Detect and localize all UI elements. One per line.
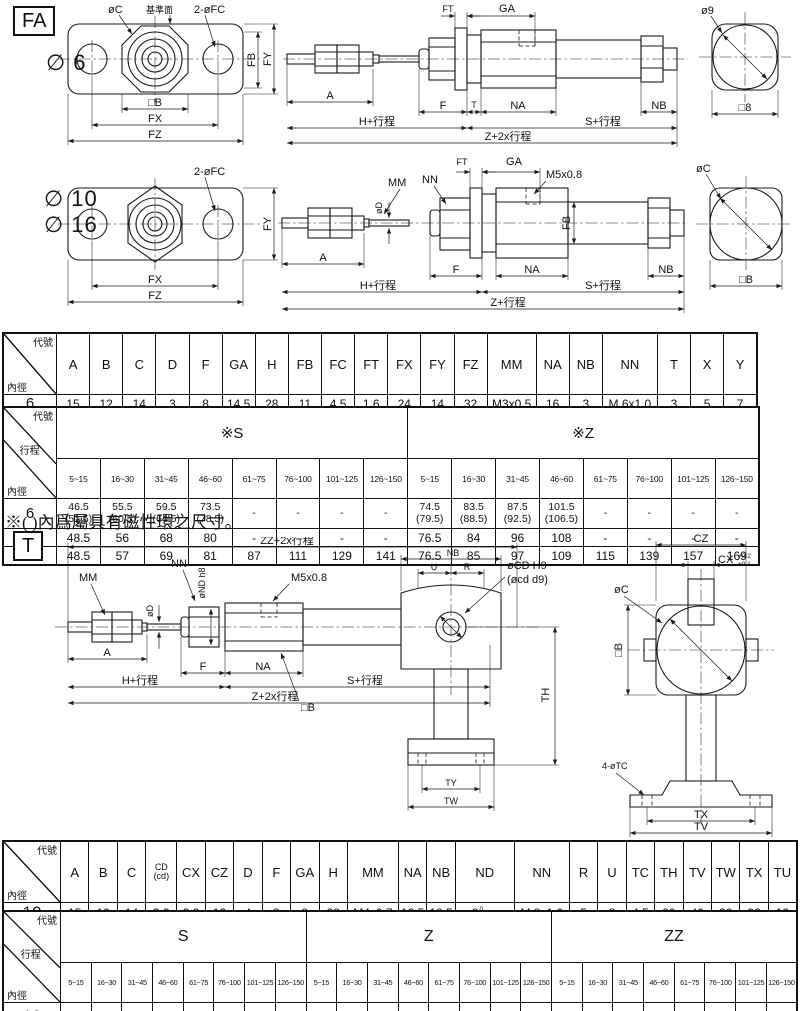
- dim-label-t: T: [471, 100, 477, 110]
- column-header-cell: ND: [455, 841, 514, 903]
- dim-label-od: øD: [145, 605, 155, 617]
- group-header-row: 代號 行程 內徑 ※S ※Z: [3, 407, 759, 459]
- dim-label-u: U: [431, 562, 438, 572]
- dim-label-nb: NB: [651, 100, 666, 112]
- dim-label-cz: CZ: [694, 533, 709, 545]
- column-header-cell: 101~125: [320, 459, 364, 499]
- dim-label-b: □B: [739, 274, 753, 286]
- column-header-cell: 101~125: [245, 963, 276, 1003]
- column-header-cell: 101~125: [671, 459, 715, 499]
- column-header-cell: D: [234, 841, 262, 903]
- column-header-cell: C: [117, 841, 145, 903]
- value-cell: 48.5: [61, 1003, 92, 1011]
- column-header-cell: 76~100: [627, 459, 671, 499]
- column-header-cell: 61~75: [674, 963, 705, 1003]
- value-cell: -: [275, 1003, 306, 1011]
- dim-label-tx: TX: [694, 809, 709, 821]
- column-header-cell: Y: [724, 333, 757, 395]
- corner-label-stroke: 行程: [21, 946, 41, 961]
- table-header-row: 代號 內徑 ABCCD (cd)CXCZDFGAHMMNANBNDNNRUTCT…: [3, 841, 797, 903]
- corner-label-stroke: 行程: [20, 442, 40, 457]
- magnet-note: ※( )內爲屬具有磁性環之尺寸。: [5, 508, 242, 533]
- dim-label-fy: FY: [262, 216, 274, 231]
- dim-label-r: R: [464, 562, 471, 572]
- value-cell: -: [183, 1003, 214, 1011]
- value-cell: 74.5 (79.5): [408, 499, 452, 529]
- column-header-cell: 126~150: [521, 963, 552, 1003]
- column-header-cell: 31~45: [122, 963, 153, 1003]
- column-header-cell: 76~100: [214, 963, 245, 1003]
- column-header-cell: TW: [712, 841, 740, 903]
- leaders: MM øD NN M5x0.8: [374, 169, 582, 244]
- dimensions: FT GA FB A F NA NB H+行程 S+行程 Z+行程: [282, 156, 684, 313]
- column-header-cell: CD (cd): [146, 841, 177, 903]
- fa-side-view-bore1016: MM øD NN M5x0.8 FT GA FB A F: [278, 152, 693, 327]
- value-cell: 101.5 (106.5): [539, 499, 583, 529]
- column-header-cell: 16~30: [337, 963, 368, 1003]
- dim-label-fy: FY: [262, 51, 274, 66]
- column-header-cell: NN: [602, 333, 657, 395]
- value-cell: -: [671, 499, 715, 529]
- fa-end-view-bore6: ø9 □8: [695, 2, 795, 132]
- column-header-cell: 5~15: [552, 963, 583, 1003]
- column-header-cell: FB: [288, 333, 321, 395]
- value-cell: -: [214, 1003, 245, 1011]
- dim-label-na: NA: [255, 661, 271, 673]
- dim-label-h-stroke: H+行程: [122, 674, 158, 687]
- column-header-cell: TU: [768, 841, 797, 903]
- value-cell: -: [766, 1003, 797, 1011]
- column-header-cell: 101~125: [736, 963, 767, 1003]
- value-cell: -: [364, 499, 408, 529]
- column-header-cell: 16~30: [91, 963, 122, 1003]
- dimensions: FT GA A F T NA NB H+行程 S+行程 Z+2x行程: [287, 3, 677, 147]
- value-cell: 115: [613, 1003, 644, 1011]
- corner-label-code: 代號: [33, 408, 53, 423]
- dim-label-oc: øC: [108, 4, 123, 16]
- value-cell: 68: [122, 1003, 153, 1011]
- value-cell: -: [627, 499, 671, 529]
- value-cell: -: [276, 499, 320, 529]
- dim-label-oc: øC: [696, 163, 711, 175]
- dimensions: CZ CX +0.2 +0.1 øC □B 4-øTC TX TV: [602, 533, 772, 837]
- t-side-view: MM øD NN øND h8 M5x0.8 □B øCD H9 (øcd d9…: [35, 537, 600, 832]
- column-header-cell: 126~150: [766, 963, 797, 1003]
- dim-label-tw: TW: [444, 796, 458, 806]
- dim-label-fb: FB: [561, 216, 573, 230]
- column-header-cell: 126~150: [715, 459, 759, 499]
- value-cell: 84.5: [306, 1003, 337, 1011]
- corner-label-code: 代號: [37, 842, 57, 857]
- dim-label-mm: MM: [79, 572, 97, 584]
- dim-label-nn: NN: [422, 174, 438, 186]
- column-header-cell: A: [57, 333, 90, 395]
- column-header-cell: R: [569, 841, 597, 903]
- column-header-cell: MM: [487, 333, 536, 395]
- corner-label-code: 代號: [33, 334, 53, 349]
- corner-label-code: 代號: [37, 912, 57, 927]
- dim-label-fb: FB: [246, 53, 258, 67]
- column-header-cell: B: [90, 333, 123, 395]
- group-header-s: ※S: [57, 407, 408, 459]
- t-stroke-table: 代號 行程 內徑 S Z ZZ 5~1516~3031~4546~6061~75…: [2, 910, 798, 1011]
- column-header-cell: FT: [355, 333, 388, 395]
- column-header-cell: U: [598, 841, 626, 903]
- column-header-cell: 5~15: [61, 963, 92, 1003]
- dim-label-z-stroke: Z+2x行程: [485, 130, 532, 143]
- stroke-header-row: 5~1516~3031~4546~6061~7576~100101~125126…: [3, 459, 759, 499]
- dim-label-ga: GA: [506, 156, 523, 168]
- table-header-row: 代號 內徑 ABCDFGAHFBFCFTFXFYFZMMNANBNNTXY: [3, 333, 757, 395]
- dim-label-z-stroke: Z+行程: [490, 296, 525, 309]
- dim-label-ty: TY: [445, 778, 457, 788]
- value-cell: 103: [582, 1003, 613, 1011]
- dim-label-b8: □8: [739, 102, 752, 114]
- column-header-cell: 61~75: [429, 963, 460, 1003]
- column-header-cell: TV: [683, 841, 711, 903]
- dim-label-h-stroke: H+行程: [359, 115, 395, 128]
- column-header-cell: FZ: [454, 333, 487, 395]
- column-header-cell: 46~60: [644, 963, 675, 1003]
- dim-label-ft: FT: [443, 4, 454, 14]
- column-header-cell: NA: [398, 841, 426, 903]
- fa-side-view-bore6: FT GA A F T NA NB H+行程 S+行程 Z+2x行程: [283, 2, 693, 152]
- corner-cell: 代號 行程 內徑: [3, 407, 57, 499]
- mount-type-fa-badge: FA: [13, 6, 55, 36]
- corner-label-bore: 內徑: [7, 483, 27, 498]
- value-cell: 104: [367, 1003, 398, 1011]
- centerlines: [58, 16, 260, 102]
- column-header-cell: 5~15: [306, 963, 337, 1003]
- dim-label-b: □B: [301, 702, 315, 714]
- column-header-cell: D: [156, 333, 189, 395]
- dim-label-f: F: [200, 661, 207, 673]
- column-header-cell: 101~125: [490, 963, 521, 1003]
- dim-label-fc: 2-øFC: [194, 4, 225, 16]
- column-header-cell: 61~75: [583, 459, 627, 499]
- dim-label-tv: TV: [694, 821, 709, 833]
- column-header-cell: 61~75: [232, 459, 276, 499]
- dim-label-ft: FT: [457, 157, 468, 167]
- dim-label-oc: øC: [614, 584, 629, 596]
- column-header-cell: TC: [626, 841, 654, 903]
- column-header-cell: 31~45: [144, 459, 188, 499]
- column-header-cell: 76~100: [459, 963, 490, 1003]
- value-cell: -: [245, 1003, 276, 1011]
- bore-cell: 10: [3, 1003, 61, 1011]
- dim-label-cx-sup: +0.2: [738, 553, 751, 560]
- column-header-cell: NB: [569, 333, 602, 395]
- column-header-cell: C: [123, 333, 156, 395]
- corner-label-bore: 內徑: [7, 987, 27, 1002]
- value-cell: -: [429, 1003, 460, 1011]
- catalog-page: FA ∅ 6 øC 基準面 2-øFC FB FY: [0, 0, 800, 1011]
- column-header-cell: FX: [388, 333, 421, 395]
- column-header-cell: GA: [222, 333, 255, 395]
- dim-label-ocd2: (øcd d9): [507, 574, 548, 586]
- dim-label-fz: FZ: [148, 129, 162, 141]
- leaders: MM øD NN øND h8 M5x0.8 □B øCD H9 (øcd d9…: [79, 558, 548, 714]
- dim-label-h-stroke: H+行程: [360, 279, 396, 292]
- dim-label-ga: GA: [499, 3, 516, 15]
- column-header-cell: NN: [514, 841, 569, 903]
- corner-label-bore: 內徑: [7, 887, 27, 902]
- fa-front-view-bore6: øC 基準面 2-øFC FB FY □B FX FZ: [58, 2, 283, 152]
- corner-label-bore: 內徑: [7, 379, 27, 394]
- value-cell: 87.5 (92.5): [496, 499, 540, 529]
- value-cell: -: [715, 499, 759, 529]
- value-cell: 116: [398, 1003, 429, 1011]
- column-header-cell: FY: [421, 333, 454, 395]
- value-cell: 80: [153, 1003, 184, 1011]
- dim-label-ocd: øCD H9: [507, 560, 547, 572]
- group-header-z: ※Z: [408, 407, 759, 459]
- fa-end-view-bore1016: øC □B: [688, 158, 798, 308]
- group-header-z: Z: [306, 911, 552, 963]
- column-header-cell: B: [89, 841, 117, 903]
- column-header-cell: CZ: [205, 841, 233, 903]
- stroke-header-row: 5~1516~3031~4546~6061~7576~100101~125126…: [3, 963, 797, 1003]
- column-header-cell: 46~60: [539, 459, 583, 499]
- value-cell: -: [736, 1003, 767, 1011]
- column-header-cell: H: [255, 333, 288, 395]
- dim-label-cx: CX: [718, 554, 734, 566]
- dim-label-a: A: [319, 252, 327, 264]
- column-header-cell: 31~45: [613, 963, 644, 1003]
- dim-label-s-stroke: S+行程: [585, 115, 621, 128]
- dim-label-a: A: [103, 647, 111, 659]
- value-cell: -: [583, 499, 627, 529]
- dim-label-s-stroke: S+行程: [585, 279, 621, 292]
- dim-label-nn: NN: [171, 558, 187, 570]
- column-header-cell: MM: [347, 841, 398, 903]
- dim-label-nb: NB: [658, 264, 673, 276]
- value-cell: 95.5: [552, 1003, 583, 1011]
- value-cell: -: [459, 1003, 490, 1011]
- value-cell: -: [320, 499, 364, 529]
- dim-label-b: □B: [613, 643, 625, 657]
- group-header-s: S: [61, 911, 307, 963]
- column-header-cell: F: [262, 841, 290, 903]
- column-header-cell: 16~30: [100, 459, 144, 499]
- column-header-cell: TH: [655, 841, 683, 903]
- column-header-cell: FC: [322, 333, 355, 395]
- column-header-cell: 46~60: [153, 963, 184, 1003]
- value-cell: 92: [337, 1003, 368, 1011]
- dim-label-na: NA: [524, 264, 540, 276]
- dim-label-s-stroke: S+行程: [347, 674, 383, 687]
- dim-label-z-stroke: Z+2x行程: [252, 690, 299, 703]
- dim-label-a: A: [326, 90, 334, 102]
- dim-label-th: TH: [540, 688, 552, 703]
- column-header-cell: T: [657, 333, 690, 395]
- column-header-cell: NA: [536, 333, 569, 395]
- dim-label-zz-stroke: ZZ+2x行程: [260, 537, 313, 547]
- dim-label-b: □B: [148, 97, 162, 109]
- dim-label-fc: 2-øFC: [194, 166, 225, 178]
- column-header-cell: NB: [427, 841, 455, 903]
- value-cell: -: [674, 1003, 705, 1011]
- t-front-view: CZ CX +0.2 +0.1 øC □B 4-øTC TX TV: [600, 527, 800, 839]
- group-header-row: 代號 行程 內徑 S Z ZZ: [3, 911, 797, 963]
- dim-label-f: F: [453, 264, 460, 276]
- column-header-cell: 16~30: [452, 459, 496, 499]
- corner-cell: 代號 內徑: [3, 333, 57, 395]
- dim-label-fz: FZ: [148, 290, 162, 302]
- column-header-cell: GA: [291, 841, 319, 903]
- corner-cell: 代號 內徑: [3, 841, 61, 903]
- dim-label-d9: ø9: [701, 5, 714, 17]
- column-header-cell: 61~75: [183, 963, 214, 1003]
- dim-label-mm: MM: [388, 177, 406, 189]
- column-header-cell: H: [319, 841, 347, 903]
- dim-label-fx: FX: [148, 274, 163, 286]
- port-thread-label: M5x0.8: [546, 169, 582, 181]
- column-header-cell: 46~60: [188, 459, 232, 499]
- column-header-cell: 5~15: [408, 459, 452, 499]
- dim-label-ond: øND h8: [197, 567, 207, 598]
- value-cell: 56: [91, 1003, 122, 1011]
- value-cell: -: [490, 1003, 521, 1011]
- column-header-cell: CX: [177, 841, 205, 903]
- dimensions: FB FY □B FX FZ: [68, 24, 278, 145]
- column-header-cell: 31~45: [367, 963, 398, 1003]
- column-header-cell: 16~30: [582, 963, 613, 1003]
- value-cell: -: [521, 1003, 552, 1011]
- column-header-cell: 5~15: [57, 459, 101, 499]
- column-header-cell: X: [691, 333, 724, 395]
- column-header-cell: TX: [740, 841, 768, 903]
- datum-label: 基準面: [146, 4, 173, 15]
- centerlines: [58, 178, 263, 270]
- port-thread-label: M5x0.8: [291, 572, 327, 584]
- dim-label-od: øD: [374, 202, 384, 214]
- value-cell: 83.5 (88.5): [452, 499, 496, 529]
- fa-front-view-bore1016: 2-øFC FY FX FZ: [58, 158, 283, 318]
- column-header-cell: 31~45: [496, 459, 540, 499]
- value-cell: 127: [644, 1003, 675, 1011]
- dim-label-tc: 4-øTC: [602, 761, 628, 771]
- dim-label-nb: NB: [447, 548, 460, 558]
- value-cell: -: [705, 1003, 736, 1011]
- dim-label-fx: FX: [148, 113, 163, 125]
- column-header-cell: A: [61, 841, 89, 903]
- dim-label-f: F: [440, 100, 447, 112]
- dim-label-na: NA: [510, 100, 526, 112]
- dim-label-cx-sub: +0.1: [738, 561, 751, 568]
- column-header-cell: F: [189, 333, 222, 395]
- corner-cell: 代號 行程 內徑: [3, 911, 61, 1003]
- group-header-zz: ZZ: [552, 911, 798, 963]
- column-header-cell: 76~100: [276, 459, 320, 499]
- column-header-cell: 76~100: [705, 963, 736, 1003]
- column-header-cell: 126~150: [275, 963, 306, 1003]
- column-header-cell: 126~150: [364, 459, 408, 499]
- table-row: 10 48.5566880----84.592104116----95.5103…: [3, 1003, 797, 1011]
- column-header-cell: 46~60: [398, 963, 429, 1003]
